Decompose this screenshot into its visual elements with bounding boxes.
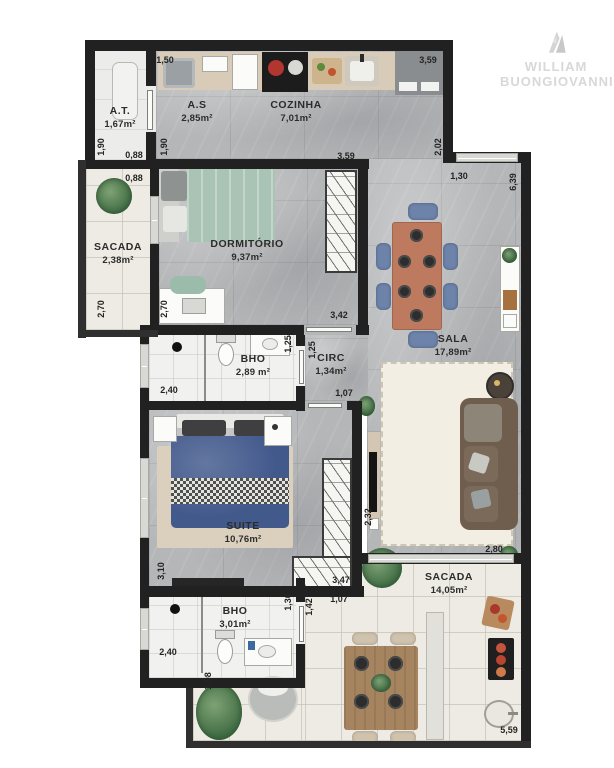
side-table-decor [494,380,500,386]
dimension-label: 3,59 [419,55,437,65]
kitchen-faucet [360,54,364,62]
dining-chair [443,243,458,270]
dimension-label: 2,40 [160,385,178,395]
window-suite [140,458,149,538]
watermark-line2: BUONGIOVANNI [500,75,612,90]
shower-glass-bho2 [201,597,203,673]
floorplan: A.T. 1,67m² A.S 2,85m² COZINHA 7,01m² SA… [0,0,614,768]
fridge-handle-right [421,82,439,91]
wall-suite-east [352,401,362,597]
dimension-label: 3,47 [332,575,350,585]
room-area: 3,01m² [219,619,250,631]
plate [423,285,436,298]
toilet-bho2 [215,630,235,666]
dimension-label: 1,25 [307,341,317,359]
dining-set-sacada [338,632,424,744]
dimension-label: 2,40 [159,647,177,657]
sideboard-door [503,314,517,328]
room-area: 2,85m² [181,113,212,125]
dimension-label: 5,59 [500,725,518,735]
room-area: 9,37m² [210,252,283,264]
dimension-label: 2,70 [159,300,169,318]
wall-dorm-east [358,159,368,335]
balcony-sink-faucet [508,712,518,715]
dining-chair [408,331,438,348]
room-label-bho-2: BHO 3,01m² [219,605,250,631]
room-name: COZINHA [270,99,321,113]
door-leaf-at [147,90,153,130]
fridge-handle-left [399,82,417,91]
sideboard-drawer [503,290,517,310]
wall-east [521,152,531,748]
nightstand-left [153,416,177,442]
nightstand-decor [272,424,278,430]
wall-north [85,40,452,51]
wall-dorm-north [150,159,369,169]
washing-machine [232,54,258,90]
bho2-soap-decor [248,641,255,650]
microwave [202,56,228,72]
sofa [460,398,518,530]
dimension-label: 1,08 [203,672,213,690]
bed-suite-pillow-dark [182,420,226,436]
dimension-label: 3,42 [330,310,348,320]
watermark: WILLIAM BUONGIOVANNI [500,28,612,90]
glass-door-sala-sacada [368,554,514,563]
side-table-round [486,372,514,400]
balcony-bench [426,612,444,740]
room-area: 7,01m² [270,113,321,125]
tv [369,452,377,512]
plant-sacada1-icon [96,178,132,214]
bed-suite-throw [171,478,289,504]
room-label-at: A.T. 1,67m² [104,105,135,131]
vegetables-green [317,63,325,71]
plant-bottom-left-icon [196,684,242,740]
dimension-label: 3,10 [156,562,166,580]
shower-head-bho1-icon [172,342,182,352]
cooktop-burner-red [268,60,284,76]
plate [388,694,403,709]
room-label-cozinha: COZINHA 7,01m² [270,99,321,125]
door-leaf-suite [308,403,342,408]
grill-prep-board [484,594,514,630]
dimension-label: 1,50 [156,55,174,65]
wall-sacada1-north [85,160,158,169]
room-area: 1,34m² [315,366,346,378]
dimension-label: 1,42 [304,598,314,616]
sofa-chaise-cushion [464,404,502,442]
wb-monogram-icon [538,28,574,58]
plate [354,694,369,709]
parapet-sacada2-south [186,741,531,748]
sink-bho2 [258,645,276,658]
room-label-sacada-2: SACADA 14,05m² [425,571,473,597]
room-name: BHO [219,605,250,619]
outdoor-chair [352,632,378,645]
room-name: A.S [181,99,212,113]
shower-glass-bho1 [204,335,206,401]
door-leaf-bho1 [299,350,304,384]
plate [410,309,423,322]
dimension-label: 1,90 [159,138,169,156]
room-area: 2,89 m² [236,367,270,379]
cooktop-burner-gray [288,60,303,75]
room-area: 1,67m² [104,119,135,131]
dining-chair [376,283,391,310]
room-name: CIRC [315,352,346,366]
parapet-sacada2-west [186,688,193,748]
dining-chair [408,203,438,220]
room-label-circ: CIRC 1,34m² [315,352,346,378]
room-label-sala: SALA 17,89m² [435,333,472,359]
dimension-label: 1,07 [330,594,348,604]
room-label-suite: SUITE 10,76m² [225,520,262,546]
dimension-label: 2,70 [96,300,106,318]
bed-dormitorio [159,168,275,242]
sofa-pillow [470,488,491,509]
wardrobe-dormitorio [325,170,357,273]
barbecue-grill [488,638,514,680]
cutting-board [312,58,342,84]
dimension-label: 6,39 [508,173,518,191]
watermark-line1: WILLIAM [500,60,612,75]
room-label-sacada-1: SACADA 2,38m² [94,241,142,267]
room-name: DORMITÓRIO [210,238,283,252]
dimension-label: 1,07 [335,388,353,398]
room-name: SACADA [94,241,142,255]
dining-chair [443,283,458,310]
dimension-label: 2,80 [485,544,503,554]
door-leaf-dormitorio [306,327,352,332]
room-label-dormitorio: DORMITÓRIO 9,37m² [210,238,283,264]
room-name: BHO [236,353,270,367]
plate [388,656,403,671]
wall-kitchen-east [443,40,453,161]
dimension-label: 2,32 [363,508,373,526]
wall-dorm-west [150,159,159,330]
room-name: A.T. [104,105,135,119]
dimension-label: 1,30 [283,593,293,611]
laptop [182,298,206,314]
dining-chair [376,243,391,270]
glass-door-dorm-sacada [150,196,159,244]
parapet-sacada1-south [78,330,158,337]
room-label-bho-1: BHO 2,89 m² [236,353,270,379]
room-area: 10,76m² [225,534,262,546]
plate [354,656,369,671]
desk-chair [170,276,206,294]
dimension-label: 0,88 [125,150,143,160]
kitchen-sink-basin [350,61,374,81]
wardrobe-suite-vertical [322,458,352,560]
plate [398,255,411,268]
dimension-label: 0,88 [125,173,143,183]
toilet-bho1 [216,334,236,368]
parapet-sacada1-west [78,160,86,338]
room-name: SACADA [425,571,473,585]
outdoor-chair [390,632,416,645]
window-bho1 [140,344,149,388]
bed-dorm-pillow-gray [161,171,187,201]
dimension-label: 3,59 [337,151,355,161]
bed-dorm-pillow-white [163,206,187,232]
window-sala-north [456,153,518,162]
room-label-as: A.S 2,85m² [181,99,212,125]
sideboard-plant-icon [502,248,517,263]
room-area: 14,05m² [425,585,473,597]
wall-bho2-south [140,678,302,688]
wall-west-upper [85,40,95,169]
room-name: SUITE [225,520,262,534]
room-name: SALA [435,333,472,347]
bed-dorm-duvet [187,168,275,242]
dimension-label: 1,25 [283,335,293,353]
centerpiece-plant-icon [371,674,391,692]
plate [398,285,411,298]
sink-bho1 [262,338,278,350]
nightstand-right [264,416,292,446]
shower-head-bho2-icon [170,604,180,614]
dimension-label: 2,02 [433,138,443,156]
room-area: 17,89m² [435,347,472,359]
vegetables-red [328,68,336,76]
dimension-label: 1,30 [450,171,468,181]
room-area: 2,38m² [94,255,142,267]
dining-set-sala [376,203,458,349]
plate [410,229,423,242]
window-bho2 [140,608,149,650]
plate [423,255,436,268]
dimension-label: 1,90 [96,138,106,156]
